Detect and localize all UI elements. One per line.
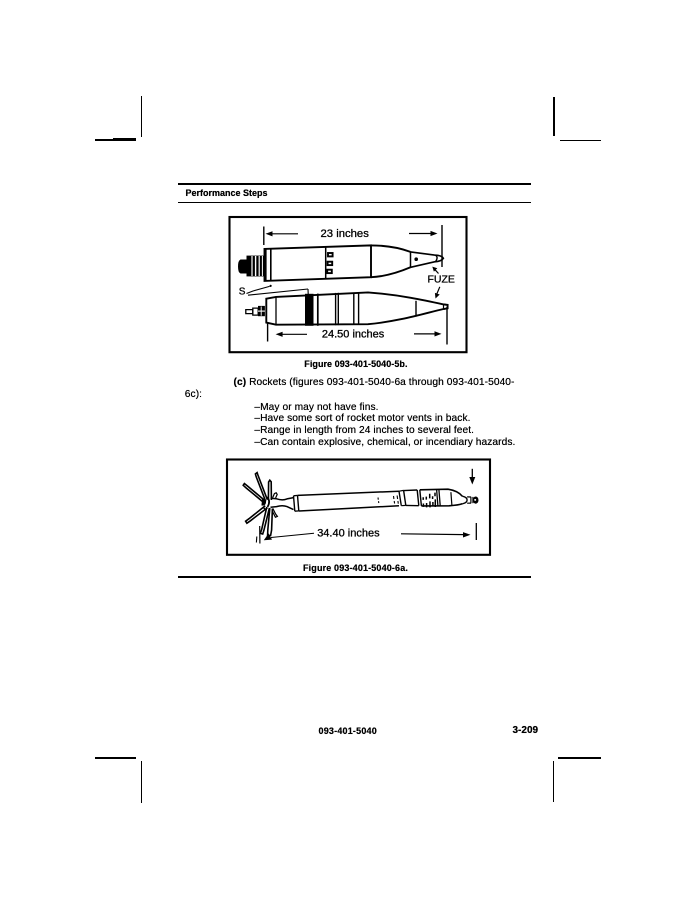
- svg-text:FUZE: FUZE: [428, 274, 455, 286]
- svg-text:24.50 inches: 24.50 inches: [322, 329, 385, 341]
- svg-text:S: S: [239, 286, 246, 297]
- svg-text:34.40 inches: 34.40 inches: [317, 527, 380, 539]
- svg-text:23 inches: 23 inches: [321, 228, 370, 240]
